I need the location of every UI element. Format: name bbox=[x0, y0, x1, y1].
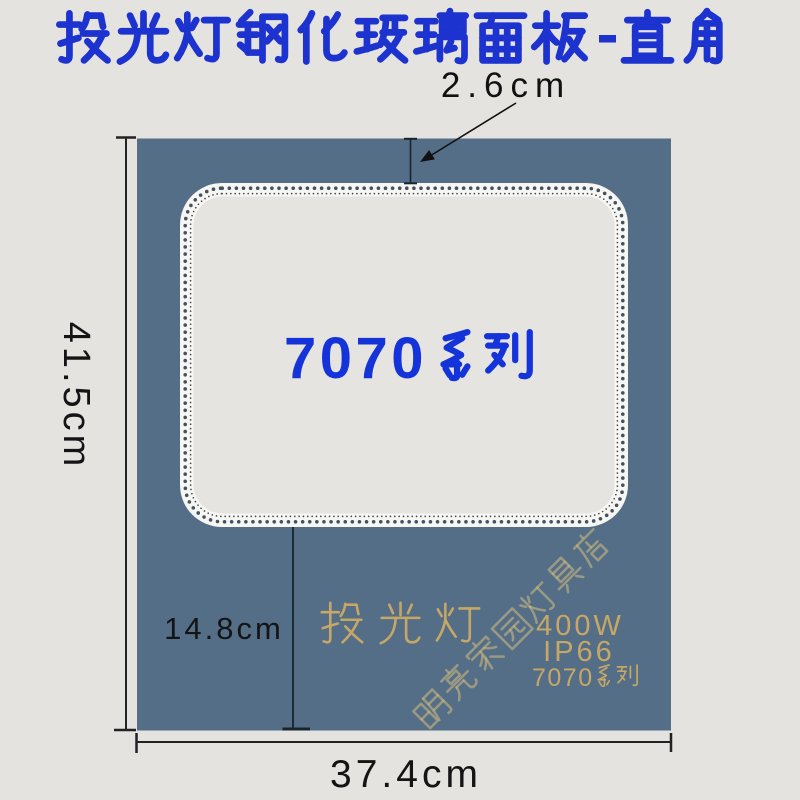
svg-text:14.8cm: 14.8cm bbox=[164, 611, 284, 646]
svg-text:37.4cm: 37.4cm bbox=[330, 753, 482, 796]
svg-text:41.5cm: 41.5cm bbox=[55, 322, 97, 471]
svg-text:7070: 7070 bbox=[284, 326, 427, 391]
svg-text:2.6cm: 2.6cm bbox=[441, 66, 571, 105]
svg-text:7070: 7070 bbox=[532, 664, 594, 692]
